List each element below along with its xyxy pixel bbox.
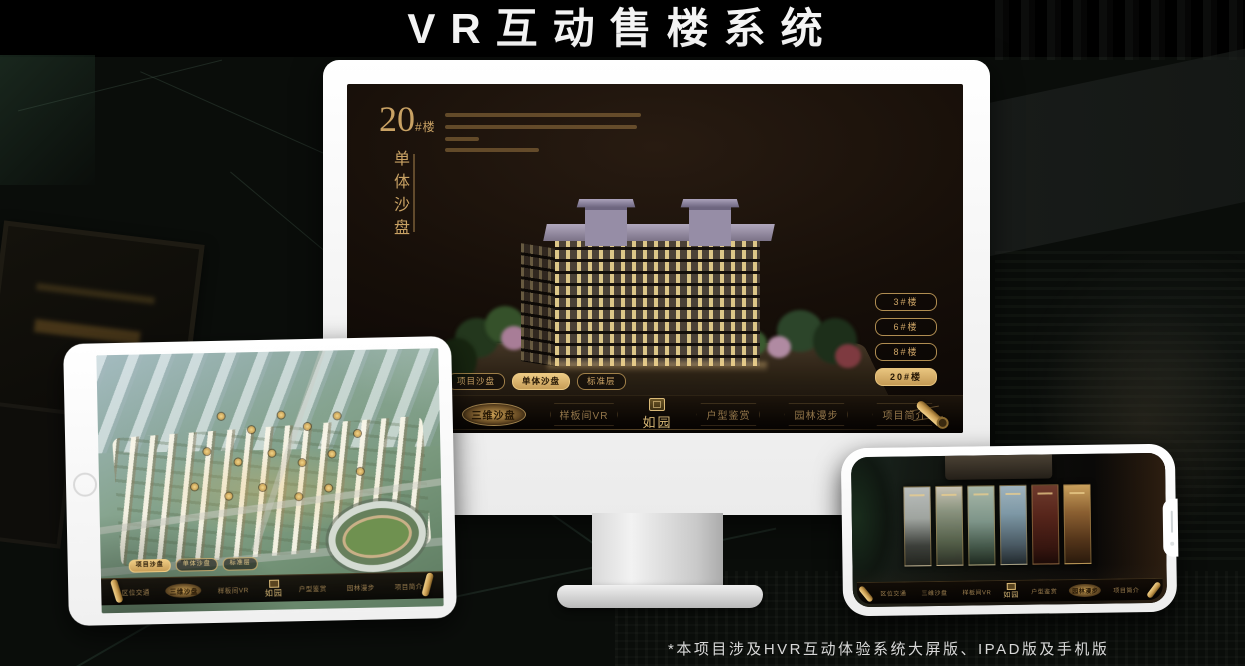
scene-panel-landscape[interactable] bbox=[967, 485, 995, 565]
nav-item-floorplans[interactable]: 户型鉴赏 bbox=[1028, 584, 1060, 597]
building-marker[interactable] bbox=[304, 423, 311, 430]
tablet-device: 项目沙盘 单体沙盘 标准层 区位交通 三维沙盘 样板间VR 如园 户型鉴赏 园林… bbox=[63, 336, 457, 626]
subtab-project-sandbox[interactable]: 项目沙盘 bbox=[447, 373, 505, 390]
scene-panel-garden[interactable] bbox=[935, 486, 963, 566]
floor-button-group: 3#楼 6#楼 8#楼 20#楼 bbox=[875, 293, 937, 393]
nav-item-garden-walk[interactable]: 园林漫步 bbox=[343, 580, 379, 595]
brand-name: 如园 bbox=[1003, 590, 1019, 600]
speaker-slit bbox=[1171, 511, 1173, 533]
building-front-facade bbox=[555, 238, 760, 366]
unit-suffix: #楼 bbox=[415, 120, 436, 134]
unit-deco-line bbox=[413, 154, 415, 232]
scroll-icon[interactable] bbox=[911, 396, 951, 433]
ground-glow bbox=[547, 362, 767, 372]
sandbox-subtabs: 项目沙盘 单体沙盘 标准层 bbox=[447, 373, 626, 390]
nav-item-3d-sandbox[interactable]: 三维沙盘 bbox=[462, 403, 526, 426]
tablet-screen: 项目沙盘 单体沙盘 标准层 区位交通 三维沙盘 样板间VR 如园 户型鉴赏 园林… bbox=[96, 348, 443, 613]
promo-canvas: VR互动售楼系统 20#楼 单体沙盘 bbox=[0, 0, 1245, 666]
tablet-subtabs: 项目沙盘 单体沙盘 标准层 bbox=[129, 557, 258, 573]
nav-item-3d-sandbox[interactable]: 三维沙盘 bbox=[918, 586, 950, 599]
footnote-text: *本项目涉及HVR互动体验系统大屏版、IPAD版及手机版 bbox=[668, 638, 1109, 659]
nav-item-floorplans[interactable]: 户型鉴赏 bbox=[295, 581, 331, 596]
ceiling-beam bbox=[945, 454, 1052, 479]
brand-logo: 如园 bbox=[1003, 583, 1019, 600]
nav-item-3d-sandbox[interactable]: 三维沙盘 bbox=[166, 583, 202, 598]
brand-name: 如园 bbox=[265, 587, 283, 598]
brand-logo: 如园 bbox=[265, 579, 283, 598]
unit-name-vertical: 单体沙盘 bbox=[387, 150, 411, 242]
unit-title: 20#楼 bbox=[379, 98, 436, 140]
nav-item-garden-walk[interactable]: 园林漫步 bbox=[784, 403, 848, 426]
floor-button-3[interactable]: 3#楼 bbox=[875, 293, 937, 311]
panel-caption bbox=[941, 494, 956, 496]
monitor-stand-base bbox=[557, 585, 763, 608]
nav-item-floorplans[interactable]: 户型鉴赏 bbox=[696, 403, 760, 426]
nav-item-showroom-vr[interactable]: 样板间VR bbox=[959, 585, 994, 598]
phone-navbar: 区位交通 三维沙盘 样板间VR 如园 户型鉴赏 园林漫步 项目简介 bbox=[857, 578, 1163, 604]
phone-notch bbox=[1163, 499, 1179, 557]
tablet-subtab-standard-floor[interactable]: 标准层 bbox=[223, 557, 258, 571]
bg-map-patch bbox=[0, 55, 95, 185]
red-tree bbox=[835, 344, 861, 368]
phone-device: 区位交通 三维沙盘 样板间VR 如园 户型鉴赏 园林漫步 项目简介 bbox=[841, 444, 1177, 617]
panel-caption bbox=[1037, 492, 1052, 494]
tablet-home-button[interactable] bbox=[73, 472, 97, 496]
scene-panel-red[interactable] bbox=[1031, 484, 1059, 564]
scroll-roll bbox=[915, 399, 946, 428]
nav-item-showroom-vr[interactable]: 样板间VR bbox=[550, 403, 619, 426]
description-line bbox=[445, 113, 641, 117]
floor-button-6[interactable]: 6#楼 bbox=[875, 318, 937, 336]
camera-dot bbox=[1170, 542, 1174, 546]
building-roof bbox=[543, 224, 775, 241]
nav-item-location[interactable]: 区位交通 bbox=[877, 586, 909, 599]
nav-item-project-intro[interactable]: 项目简介 bbox=[1110, 583, 1142, 596]
seal-icon bbox=[649, 398, 665, 411]
roof-tower bbox=[689, 206, 731, 246]
monitor-stand-neck bbox=[592, 513, 723, 587]
building-marker[interactable] bbox=[278, 411, 285, 418]
page-title: VR互动售楼系统 bbox=[0, 0, 1245, 56]
unit-number: 20 bbox=[379, 99, 415, 139]
nav-item-garden-walk[interactable]: 园林漫步 bbox=[1069, 584, 1101, 597]
blossom-tree bbox=[767, 336, 791, 358]
tablet-subtab-single-sandbox[interactable]: 单体沙盘 bbox=[176, 558, 218, 572]
nav-item-showroom-vr[interactable]: 样板间VR bbox=[214, 582, 253, 597]
panel-caption bbox=[973, 493, 988, 495]
subtab-single-sandbox[interactable]: 单体沙盘 bbox=[512, 373, 570, 390]
scene-panel-row bbox=[903, 484, 1091, 567]
scene-panel-courtyard[interactable] bbox=[903, 486, 931, 566]
panel-caption bbox=[1069, 492, 1084, 494]
panel-caption bbox=[1005, 493, 1020, 495]
building-marker[interactable] bbox=[357, 468, 364, 475]
description-line bbox=[445, 125, 637, 129]
tablet-subtab-project-sandbox[interactable]: 项目沙盘 bbox=[129, 559, 171, 573]
building-marker[interactable] bbox=[334, 412, 341, 419]
nav-item-location[interactable]: 区位交通 bbox=[118, 584, 154, 599]
subtab-standard-floor[interactable]: 标准层 bbox=[577, 373, 626, 390]
building-side-facade bbox=[521, 243, 557, 367]
description-line bbox=[445, 148, 539, 152]
panel-caption bbox=[909, 494, 924, 496]
scene-panel-building[interactable] bbox=[999, 485, 1027, 565]
seal-icon bbox=[269, 579, 279, 587]
building-marker[interactable] bbox=[259, 484, 266, 491]
scene-panel-interior[interactable] bbox=[1063, 484, 1091, 564]
floor-button-20[interactable]: 20#楼 bbox=[875, 368, 937, 386]
brand-logo: 如园 bbox=[642, 398, 672, 431]
description-line bbox=[445, 137, 479, 141]
building-marker[interactable] bbox=[354, 430, 361, 437]
building-marker[interactable] bbox=[203, 448, 210, 455]
brand-name: 如园 bbox=[642, 412, 672, 431]
roof-tower bbox=[585, 206, 627, 246]
phone-screen: 区位交通 三维沙盘 样板间VR 如园 户型鉴赏 园林漫步 项目简介 bbox=[851, 453, 1167, 607]
floor-button-8[interactable]: 8#楼 bbox=[875, 343, 937, 361]
